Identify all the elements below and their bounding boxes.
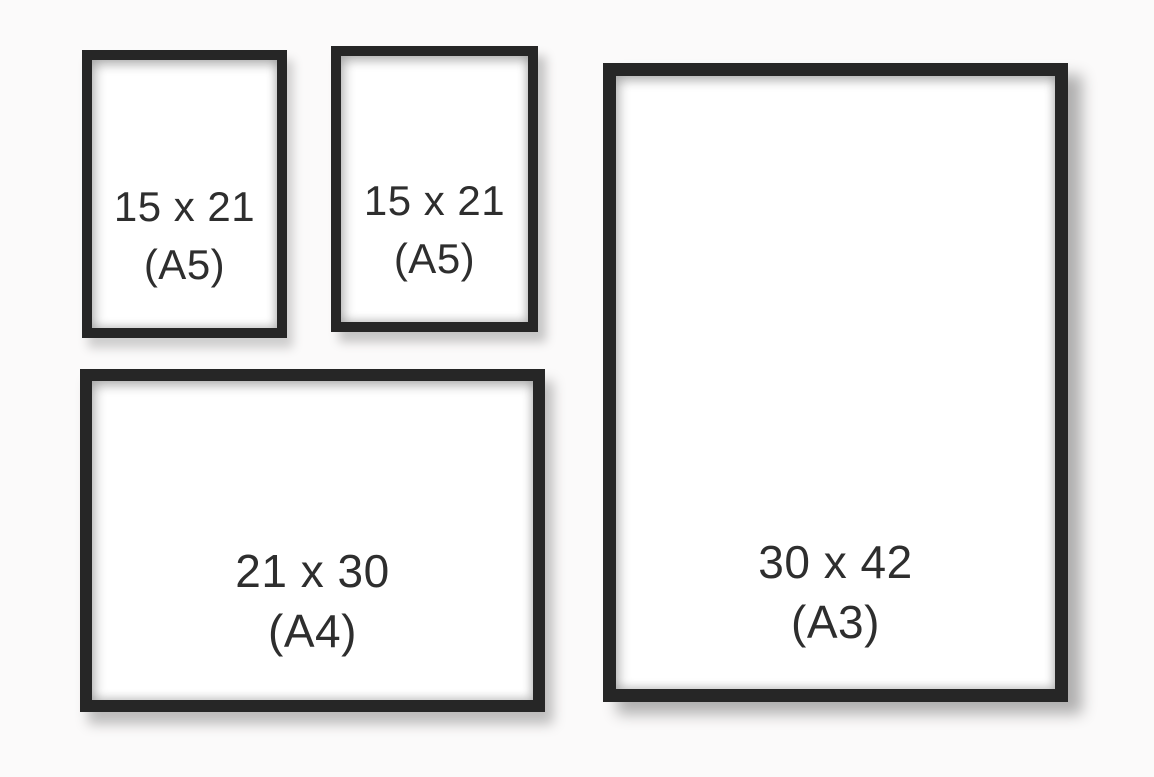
dimensions-text: 15 x 21 (364, 172, 505, 230)
dimensions-text: 30 x 42 (758, 533, 912, 593)
size-label: 15 x 21 (A5) (364, 172, 505, 288)
format-text: (A3) (758, 593, 912, 653)
frame-paper: 30 x 42 (A3) (616, 76, 1055, 689)
picture-frame-a5-top-middle: 15 x 21 (A5) (331, 46, 538, 332)
size-label: 30 x 42 (A3) (758, 533, 912, 653)
picture-frame-a3-right: 30 x 42 (A3) (603, 63, 1068, 702)
frame-paper: 15 x 21 (A5) (92, 60, 277, 328)
format-text: (A4) (235, 602, 389, 662)
size-label: 15 x 21 (A5) (114, 178, 255, 294)
size-label: 21 x 30 (A4) (235, 542, 389, 662)
format-text: (A5) (364, 230, 505, 288)
frame-sizes-diagram: 15 x 21 (A5) 15 x 21 (A5) 21 x 30 (A4) 3… (0, 0, 1154, 777)
dimensions-text: 15 x 21 (114, 178, 255, 236)
frame-paper: 21 x 30 (A4) (92, 381, 533, 700)
dimensions-text: 21 x 30 (235, 542, 389, 602)
frame-paper: 15 x 21 (A5) (341, 56, 528, 322)
picture-frame-a5-top-left: 15 x 21 (A5) (82, 50, 287, 338)
picture-frame-a4-bottom-left: 21 x 30 (A4) (80, 369, 545, 712)
format-text: (A5) (114, 236, 255, 294)
